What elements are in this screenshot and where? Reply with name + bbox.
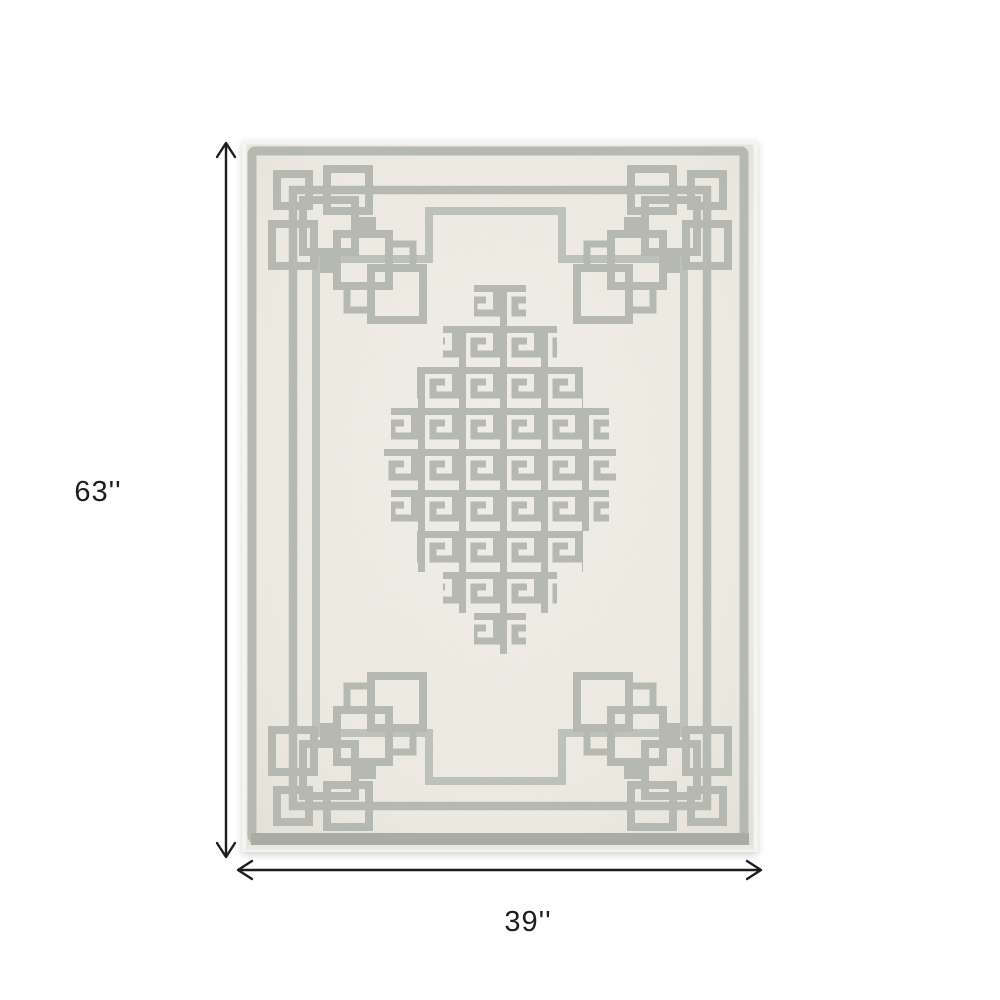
horizontal-double-arrow-icon (238, 861, 761, 879)
height-dimension-label: 63'' (56, 478, 140, 507)
vertical-double-arrow-icon (217, 143, 235, 857)
product-dimension-image: 63'' 39'' (0, 0, 1000, 1000)
width-dimension-label: 39'' (486, 908, 570, 937)
rug-texture-overlay (242, 140, 758, 852)
rug-image (242, 140, 758, 852)
